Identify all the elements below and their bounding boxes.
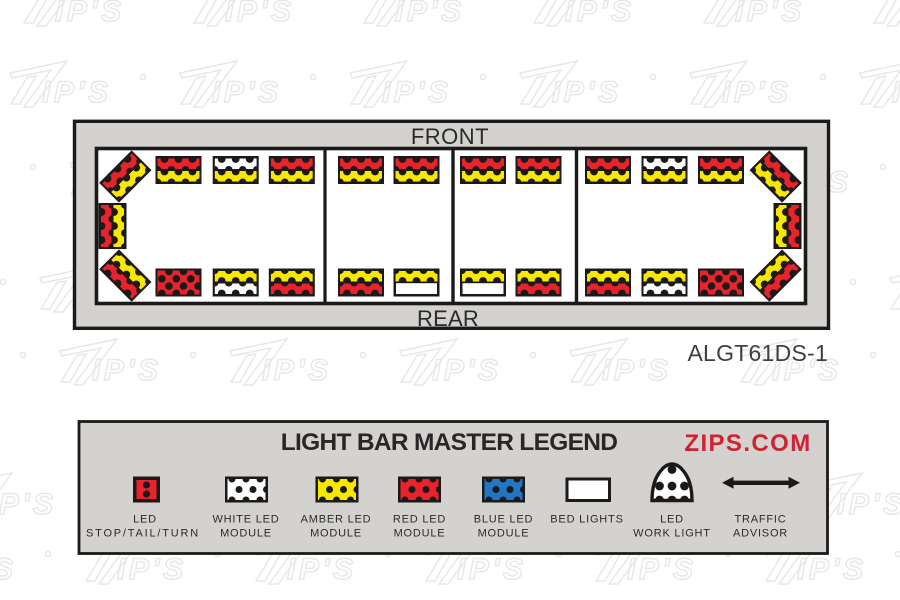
svg-text:MODULE: MODULE [394, 528, 446, 540]
svg-text:FRONT: FRONT [411, 124, 489, 149]
svg-text:MODULE: MODULE [478, 528, 530, 540]
svg-text:WORK LIGHT: WORK LIGHT [633, 528, 711, 540]
svg-text:BLUE LED: BLUE LED [474, 514, 534, 526]
svg-text:LED: LED [660, 514, 684, 526]
svg-text:LIGHT BAR MASTER LEGEND: LIGHT BAR MASTER LEGEND [281, 429, 617, 456]
svg-text:REAR: REAR [417, 306, 479, 331]
svg-text:MODULE: MODULE [310, 528, 362, 540]
svg-text:WHITE LED: WHITE LED [212, 514, 279, 526]
svg-text:RED LED: RED LED [393, 514, 446, 526]
svg-text:ADVISOR: ADVISOR [733, 528, 788, 540]
svg-text:ZIPS.COM: ZIPS.COM [684, 430, 811, 457]
svg-text:AMBER LED: AMBER LED [301, 514, 372, 526]
svg-text:MODULE: MODULE [220, 528, 272, 540]
svg-text:ALGT61DS-1: ALGT61DS-1 [687, 340, 828, 366]
svg-text:TRAFFIC: TRAFFIC [734, 514, 786, 526]
svg-text:STOP/TAIL/TURN: STOP/TAIL/TURN [86, 528, 200, 540]
svg-text:LED: LED [133, 514, 157, 526]
svg-text:BED LIGHTS: BED LIGHTS [550, 514, 623, 526]
